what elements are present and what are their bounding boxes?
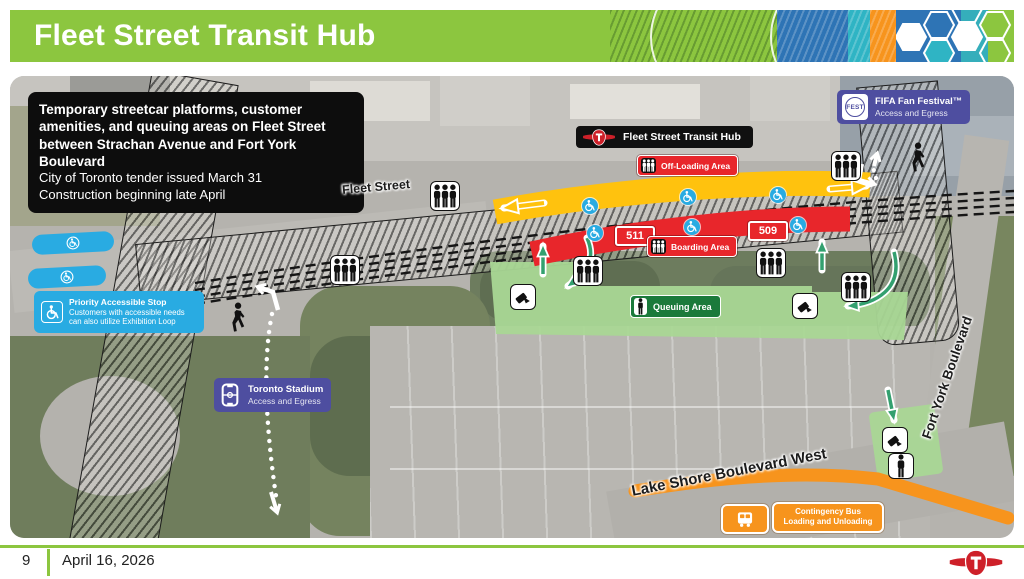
wheelchair-boarding-point [582,198,598,214]
accessible-stop-bar [32,231,115,255]
queuing-text: Queuing Area [653,302,712,312]
queue-person-icon [634,298,647,315]
callout-line-construction: Construction beginning late April [39,187,353,204]
stadium-icon [219,382,241,408]
wheelchair-icon [60,270,75,285]
passenger-group-icon [831,151,861,181]
off-loading-text: Off-Loading Area [661,161,730,171]
fare-tap-icon [510,284,536,310]
decor-orange-stripe [870,10,896,62]
footer-rule [0,545,1024,548]
pedestrian-icon [226,302,248,338]
project-callout: Temporary streetcar platforms, customer … [28,92,364,213]
queuing-label: Queuing Area [630,295,721,318]
pedestrian-icon [906,142,928,178]
header-decoration [610,10,1014,62]
passenger-group-icon [430,181,460,211]
wheelchair-boarding-point [680,189,696,205]
wheelchair-boarding-point [790,217,806,233]
accessible-body: Customers with accessible needs can also… [69,308,197,327]
contingency-line2: Loading and Unloading [778,517,878,527]
accessible-title: Priority Accessible Stop [69,297,197,308]
callout-bold-text: Temporary streetcar platforms, customer … [39,101,353,170]
passenger-group-icon [651,239,666,254]
fifa-fan-festival-box: FEST FIFA Fan Festival™ Access and Egres… [837,90,970,124]
off-loading-label: Off-Loading Area [637,155,738,176]
accessible-stop-bar [28,265,107,289]
decor-arc [650,10,784,62]
queue-person-icon [888,453,914,479]
footer-date: April 16, 2026 [62,552,155,569]
decor-blue-stripes [777,10,848,62]
decor-hex-zone [896,10,1014,62]
passenger-group-icon [756,248,786,278]
fifa-title: FIFA Fan Festival™ [875,96,962,107]
boarding-text: Boarding Area [671,242,729,252]
passenger-group-icon [573,256,603,286]
passenger-group-icon [330,255,360,285]
hub-label: Fleet Street Transit Hub [576,126,753,148]
wheelchair-icon [66,236,81,251]
wheelchair-boarding-point [770,187,786,203]
stadium-title: Toronto Stadium [248,384,323,395]
priority-accessible-stop-box: Priority Accessible Stop Customers with … [34,291,204,333]
wheelchair-boarding-point [587,225,603,241]
callout-line-tender: City of Toronto tender issued March 31 [39,170,353,187]
fest-logo-text: FEST [846,104,863,111]
stadium-subtitle: Access and Egress [248,396,323,406]
boarding-label: Boarding Area [647,236,737,257]
slide: Fleet Street Transit Hub [0,0,1024,579]
contingency-line1: Contingency Bus [778,507,878,517]
title-bar: Fleet Street Transit Hub [10,10,1014,62]
page-number: 9 [22,552,30,569]
passenger-group-icon [841,272,871,302]
fifa-subtitle: Access and Egress [875,108,962,118]
ttc-logo [945,549,1007,577]
map-area: Temporary streetcar platforms, customer … [10,76,1014,538]
toronto-stadium-box: Toronto Stadium Access and Egress [214,378,331,412]
bus-icon-box [721,504,769,534]
hexagon-pattern [896,10,1014,62]
wheelchair-boarding-point [684,219,700,235]
footer-divider [47,549,50,576]
decor-teal-stripe [848,10,870,62]
passenger-group-icon [641,158,656,173]
ttc-logo [582,129,616,146]
fest-logo: FEST [842,94,868,120]
hub-label-text: Fleet Street Transit Hub [623,131,741,143]
fare-tap-icon [882,427,908,453]
bus-icon [733,509,757,529]
contingency-bus-box: Contingency Bus Loading and Unloading [772,502,884,533]
fare-tap-icon [792,293,818,319]
wheelchair-icon [41,301,63,323]
route-badge-509: 509 [748,221,788,241]
